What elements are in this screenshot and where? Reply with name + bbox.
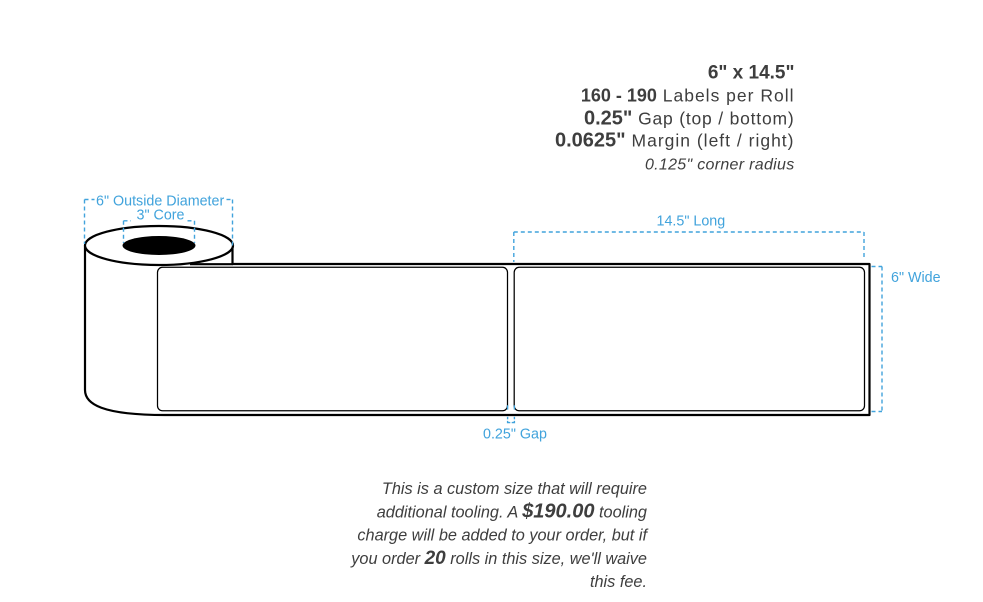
svg-text:you order 20 rolls in this siz: you order 20 rolls in this size, we'll w…	[350, 548, 647, 569]
svg-text:14.5" Long: 14.5" Long	[657, 214, 726, 230]
svg-text:0.25" Gap (top / bottom): 0.25" Gap (top / bottom)	[584, 108, 795, 130]
svg-text:charge will be added to your o: charge will be added to your order, but …	[357, 527, 648, 545]
svg-text:this fee.: this fee.	[590, 573, 647, 591]
svg-text:0.0625" Margin (left / right): 0.0625" Margin (left / right)	[555, 130, 795, 152]
svg-text:6" Wide: 6" Wide	[891, 270, 941, 286]
svg-text:additional tooling. A $190.00: additional tooling. A $190.00 tooling	[377, 500, 647, 522]
svg-text:160 - 190 Labels per Roll: 160 - 190 Labels per Roll	[581, 86, 795, 106]
svg-text:6" x 14.5": 6" x 14.5"	[708, 62, 795, 83]
svg-text:0.125" corner radius: 0.125" corner radius	[645, 157, 795, 174]
svg-text:This is a custom size that wil: This is a custom size that will require	[382, 480, 647, 498]
svg-text:0.25" Gap: 0.25" Gap	[483, 427, 547, 443]
svg-text:3" Core: 3" Core	[137, 208, 185, 224]
